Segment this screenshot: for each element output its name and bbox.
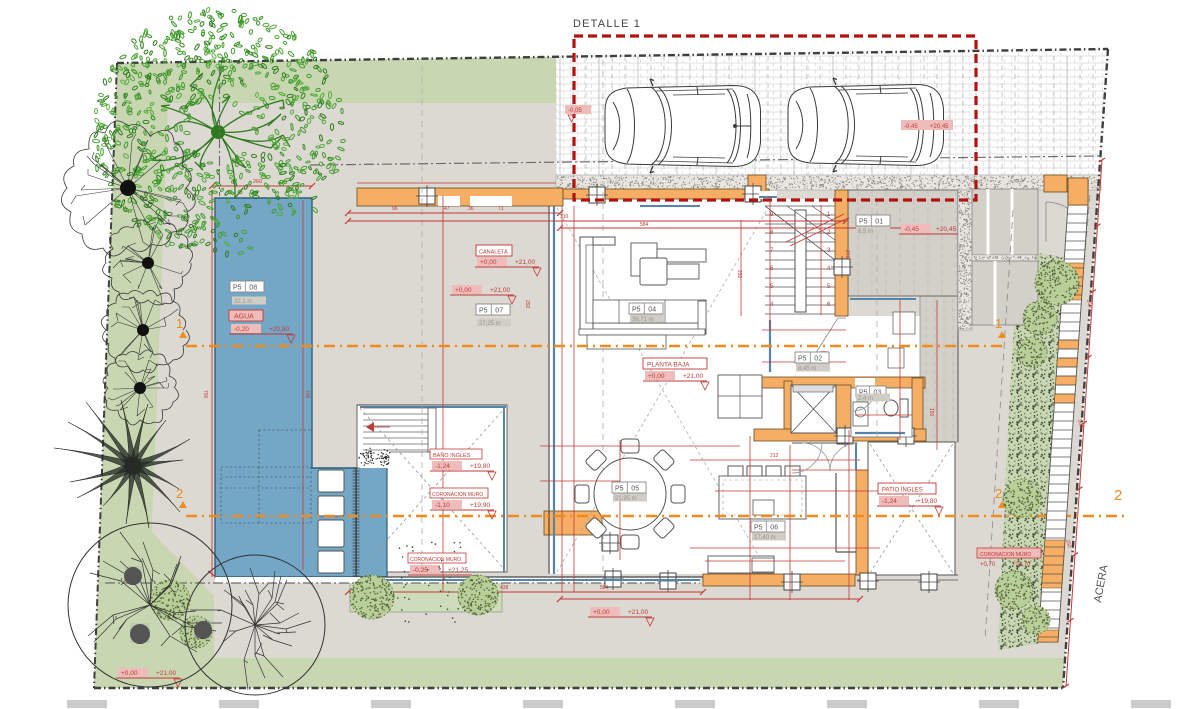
svg-text:36,71 m: 36,71 m — [632, 317, 654, 323]
svg-text:P5: P5 — [632, 307, 641, 314]
svg-text:+19,80: +19,80 — [917, 498, 937, 505]
svg-text:+19,90: +19,90 — [470, 502, 490, 509]
svg-text:17,40 m: 17,40 m — [754, 535, 776, 541]
svg-text:2: 2 — [995, 486, 1002, 501]
svg-text:6,5 m: 6,5 m — [858, 229, 873, 235]
svg-text:+21,00: +21,00 — [515, 259, 535, 266]
svg-text:PATIO INGLES: PATIO INGLES — [882, 488, 923, 494]
svg-text:1: 1 — [995, 316, 1002, 331]
svg-text:P5: P5 — [233, 285, 242, 292]
svg-text:CANALETA: CANALETA — [479, 250, 508, 256]
svg-text:AGUA: AGUA — [234, 314, 254, 321]
svg-text:310: 310 — [560, 214, 569, 220]
svg-text:212: 212 — [770, 453, 779, 459]
svg-text:150: 150 — [928, 408, 934, 417]
svg-text:8,45 m: 8,45 m — [798, 366, 816, 372]
svg-text:+21,25: +21,25 — [448, 567, 468, 574]
svg-text:292: 292 — [524, 300, 530, 309]
svg-text:438: 438 — [500, 585, 509, 591]
svg-text:271: 271 — [844, 250, 850, 259]
svg-text:-0,25: -0,25 — [413, 567, 428, 574]
svg-text:-0,20: -0,20 — [234, 326, 249, 333]
svg-text:36: 36 — [468, 206, 474, 212]
svg-text:+21,00: +21,00 — [490, 287, 510, 294]
svg-text:47: 47 — [444, 206, 450, 212]
svg-text:+19,80: +19,80 — [470, 463, 490, 470]
svg-text:-1,10: -1,10 — [435, 502, 450, 509]
svg-text:CORONACION MURO: CORONACION MURO — [980, 552, 1031, 558]
svg-text:-0,45: -0,45 — [904, 124, 918, 130]
svg-text:700: 700 — [202, 390, 208, 399]
svg-text:BAÑO INGLES: BAÑO INGLES — [433, 452, 471, 459]
svg-text:+21,00: +21,00 — [156, 670, 176, 677]
svg-text:01: 01 — [875, 219, 883, 226]
svg-text:P5: P5 — [615, 486, 624, 493]
svg-text:584: 584 — [640, 222, 649, 228]
svg-text:+21,00: +21,00 — [628, 609, 648, 616]
svg-text:+0,00: +0,00 — [455, 287, 472, 294]
svg-text:96: 96 — [392, 206, 398, 212]
svg-text:32,1 m: 32,1 m — [234, 299, 252, 305]
svg-text:ACERA: ACERA — [1092, 563, 1111, 603]
svg-text:2,4 m: 2,4 m — [858, 396, 873, 402]
svg-text:P5: P5 — [479, 308, 488, 315]
svg-text:-0,45: -0,45 — [904, 226, 919, 233]
svg-text:27,25 m: 27,25 m — [479, 321, 501, 327]
svg-text:700: 700 — [304, 390, 310, 399]
svg-text:2: 2 — [1114, 487, 1122, 504]
svg-text:-1,24: -1,24 — [882, 498, 897, 505]
svg-text:CORONACION MURO: CORONACION MURO — [432, 492, 483, 498]
svg-text:260: 260 — [253, 179, 262, 185]
svg-text:05: 05 — [631, 486, 639, 493]
svg-text:CORONACION MURO: CORONACION MURO — [410, 557, 461, 563]
svg-text:+0,00: +0,00 — [593, 609, 610, 616]
svg-text:PLANTA BAJA: PLANTA BAJA — [647, 362, 690, 369]
svg-text:584: 584 — [600, 585, 609, 591]
svg-text:07: 07 — [495, 308, 503, 315]
svg-text:-0,05: -0,05 — [568, 108, 582, 114]
svg-text:1: 1 — [176, 316, 183, 331]
svg-text:P5: P5 — [859, 219, 868, 226]
svg-text:+0,00: +0,00 — [121, 670, 138, 677]
svg-text:P5: P5 — [754, 525, 763, 532]
svg-text:+21,70: +21,70 — [1012, 562, 1031, 568]
svg-text:08: 08 — [249, 285, 257, 292]
svg-text:+0,00: +0,00 — [648, 373, 665, 380]
svg-text:2: 2 — [176, 486, 183, 501]
svg-text:71: 71 — [498, 206, 504, 212]
svg-text:+21,00: +21,00 — [683, 373, 703, 380]
svg-text:+20,80: +20,80 — [269, 326, 289, 333]
svg-text:DETALLE 1: DETALLE 1 — [573, 18, 641, 30]
svg-text:P5: P5 — [798, 356, 807, 363]
svg-text:+0,70: +0,70 — [980, 562, 996, 568]
svg-text:+20,45: +20,45 — [930, 124, 949, 130]
svg-text:02: 02 — [814, 356, 822, 363]
svg-text:+20,45: +20,45 — [936, 226, 956, 233]
svg-text:292: 292 — [736, 270, 742, 279]
svg-text:04: 04 — [648, 307, 656, 314]
svg-text:21,95 m: 21,95 m — [615, 496, 637, 502]
svg-text:-1,24: -1,24 — [435, 463, 450, 470]
svg-text:+0,00: +0,00 — [480, 259, 497, 266]
svg-text:06: 06 — [770, 525, 778, 532]
